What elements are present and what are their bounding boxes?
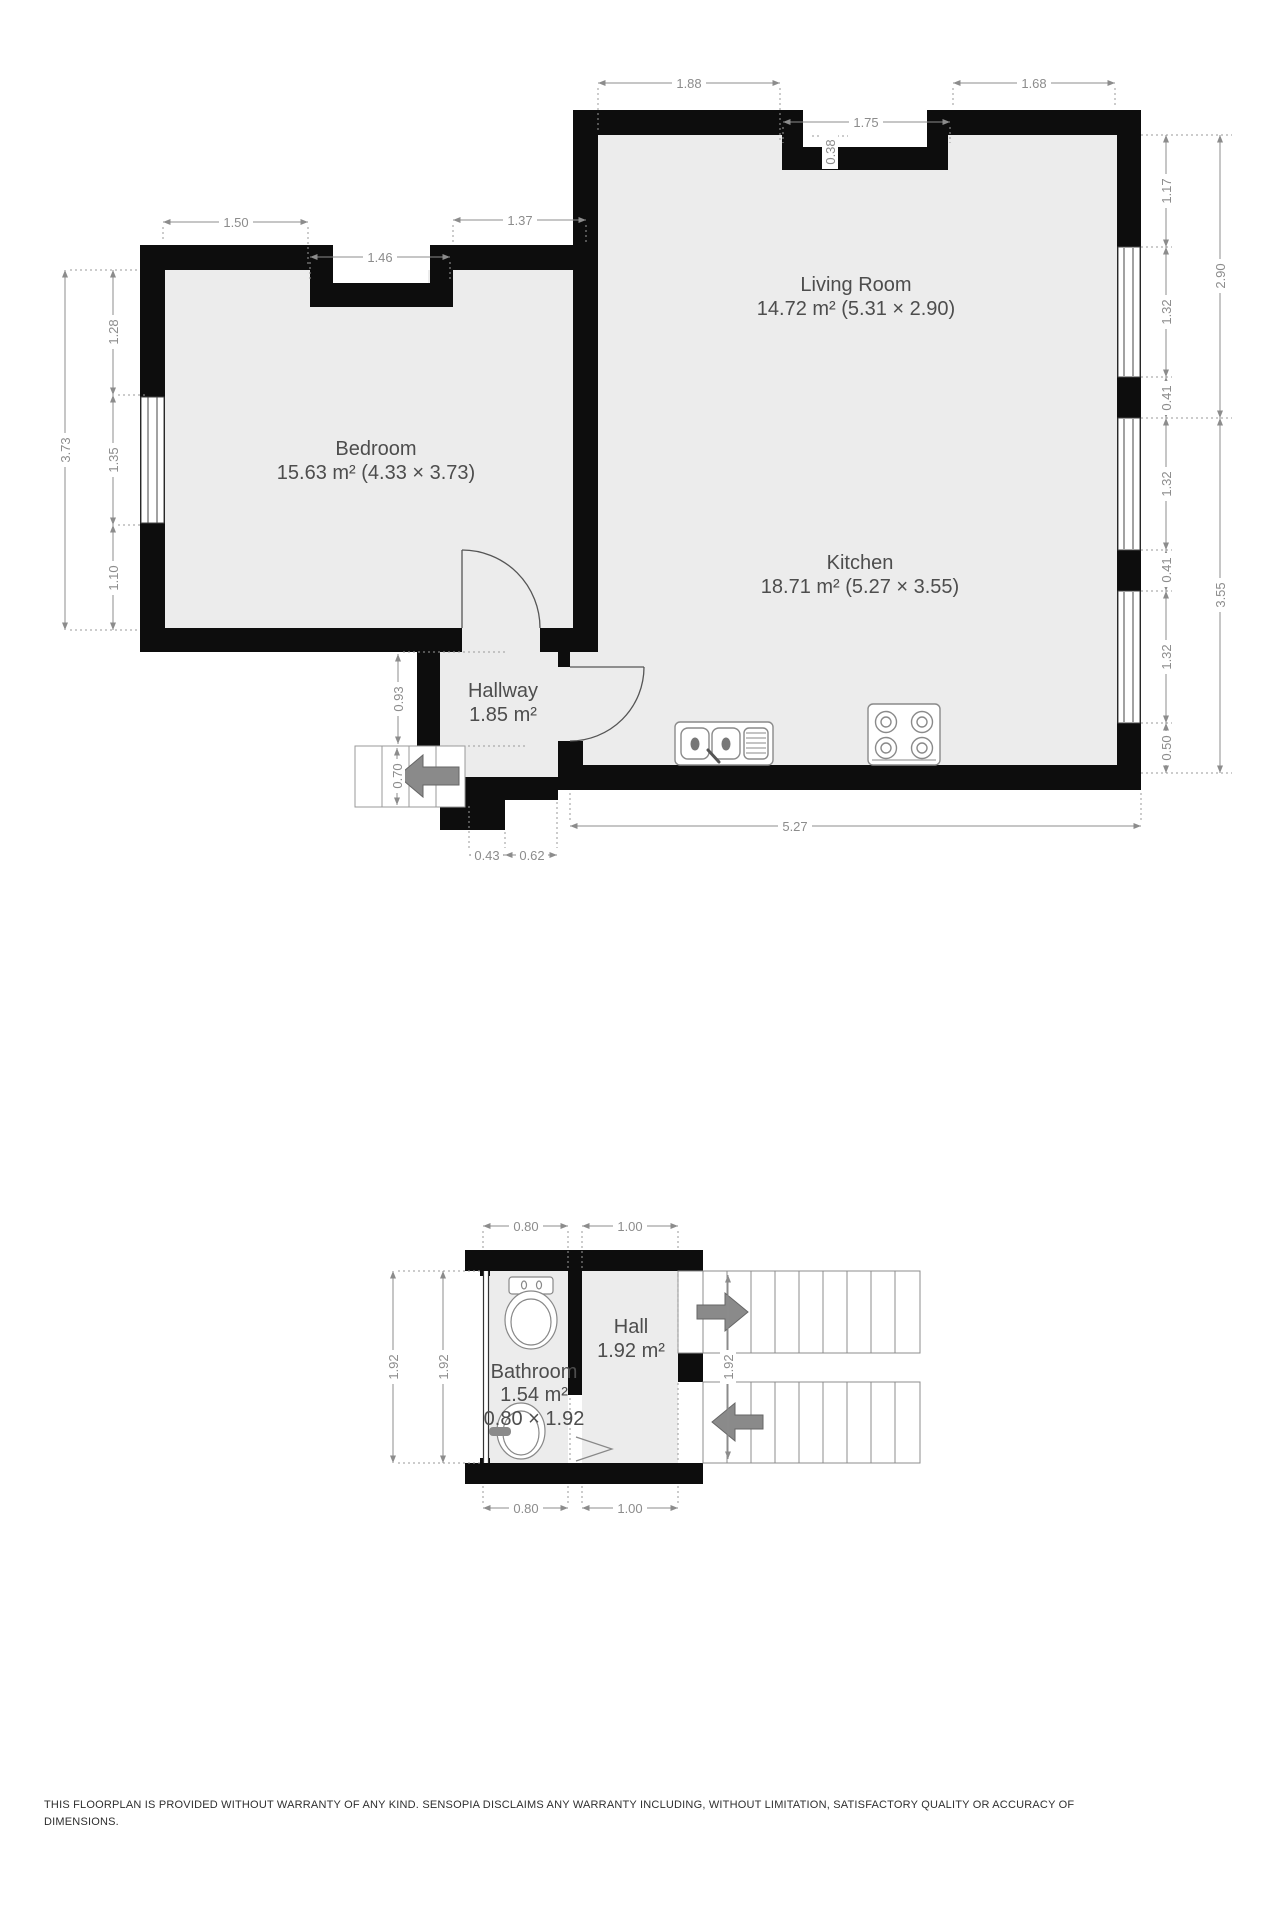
living-window (1118, 247, 1140, 377)
dim-label: 0.70 (390, 763, 405, 788)
dim-label: 1.92 (436, 1354, 451, 1379)
disclaimer-line-2: DIMENSIONS. (44, 1814, 1234, 1831)
dim-label: 1.00 (617, 1219, 642, 1234)
toilet (505, 1277, 557, 1349)
dim-label: 5.27 (782, 819, 807, 834)
floorplan-drawing: 1.88 1.68 1.75 0.38 1.50 1.46 1.37 3.73 … (0, 0, 1280, 1920)
living-notch-slot (803, 135, 927, 147)
bathroom-size: 0.80 × 1.92 (484, 1408, 585, 1430)
dim-label: 1.35 (106, 447, 121, 472)
dim-label: 1.37 (507, 213, 532, 228)
dim-label: 0.80 (513, 1501, 538, 1516)
dim-label: 2.90 (1213, 263, 1228, 288)
dim-label: 0.41 (1159, 557, 1174, 582)
kitchen-name: Kitchen (827, 552, 894, 574)
bedroom-area: 15.63 m² (4.33 × 3.73) (277, 462, 475, 484)
dim-label: 3.73 (58, 437, 73, 462)
dim-label: 1.10 (106, 565, 121, 590)
hallway-name: Hallway (468, 680, 538, 702)
bedroom-window (141, 397, 164, 523)
dim-label: 1.32 (1159, 644, 1174, 669)
bedroom-name: Bedroom (335, 438, 416, 460)
living-kitchen-floor (598, 135, 1117, 765)
floorplan-page: 1.88 1.68 1.75 0.38 1.50 1.46 1.37 3.73 … (0, 0, 1280, 1920)
living-room-name: Living Room (800, 274, 911, 296)
dim-label: 0.38 (823, 139, 838, 164)
disclaimer: THIS FLOORPLAN IS PROVIDED WITHOUT WARRA… (44, 1797, 1234, 1831)
kitchen-window-2 (1118, 591, 1140, 723)
dim-label: 1.75 (853, 115, 878, 130)
kitchen-area: 18.71 m² (5.27 × 3.55) (761, 576, 959, 598)
bathroom-name: Bathroom (491, 1361, 578, 1383)
dim-label: 3.55 (1213, 582, 1228, 607)
living-room-area: 14.72 m² (5.31 × 2.90) (757, 298, 955, 320)
dim-label: 1.28 (106, 319, 121, 344)
dim-label: 1.17 (1159, 178, 1174, 203)
hall-name: Hall (614, 1316, 648, 1338)
dim-label: 1.92 (386, 1354, 401, 1379)
hallway-area: 1.85 m² (469, 704, 537, 726)
hall-area: 1.92 m² (597, 1340, 665, 1362)
lower-floorplan: 0.80 1.00 1.92 1.92 1.92 0.80 1.00 Hall … (385, 1218, 920, 1516)
upper-floorplan: 1.88 1.68 1.75 0.38 1.50 1.46 1.37 3.73 … (57, 75, 1232, 863)
dim-label: 1.92 (721, 1354, 736, 1379)
bedroom-door-gap-floor (462, 628, 540, 652)
dim-label: 0.93 (391, 686, 406, 711)
dim-label: 1.46 (367, 250, 392, 265)
dim-label: 0.41 (1159, 385, 1174, 410)
dim-label: 0.62 (519, 848, 544, 863)
bathroom-area: 1.54 m² (500, 1384, 568, 1406)
dim-label: 0.43 (474, 848, 499, 863)
bathroom-window-wall (484, 1271, 489, 1463)
dim-label: 1.88 (676, 76, 701, 91)
kitchen-sink (675, 722, 773, 765)
kitchen-window-1 (1118, 418, 1140, 550)
kitchen-stove (868, 704, 940, 765)
hall-floor (582, 1271, 678, 1463)
dim-label: 1.50 (223, 215, 248, 230)
dim-label: 0.80 (513, 1219, 538, 1234)
dim-label: 0.50 (1159, 735, 1174, 760)
disclaimer-line-1: THIS FLOORPLAN IS PROVIDED WITHOUT WARRA… (44, 1797, 1234, 1814)
dim-label: 1.32 (1159, 299, 1174, 324)
dim-label: 1.00 (617, 1501, 642, 1516)
bedroom-notch-slot (333, 270, 428, 283)
dim-label: 1.68 (1021, 76, 1046, 91)
dim-label: 1.32 (1159, 471, 1174, 496)
